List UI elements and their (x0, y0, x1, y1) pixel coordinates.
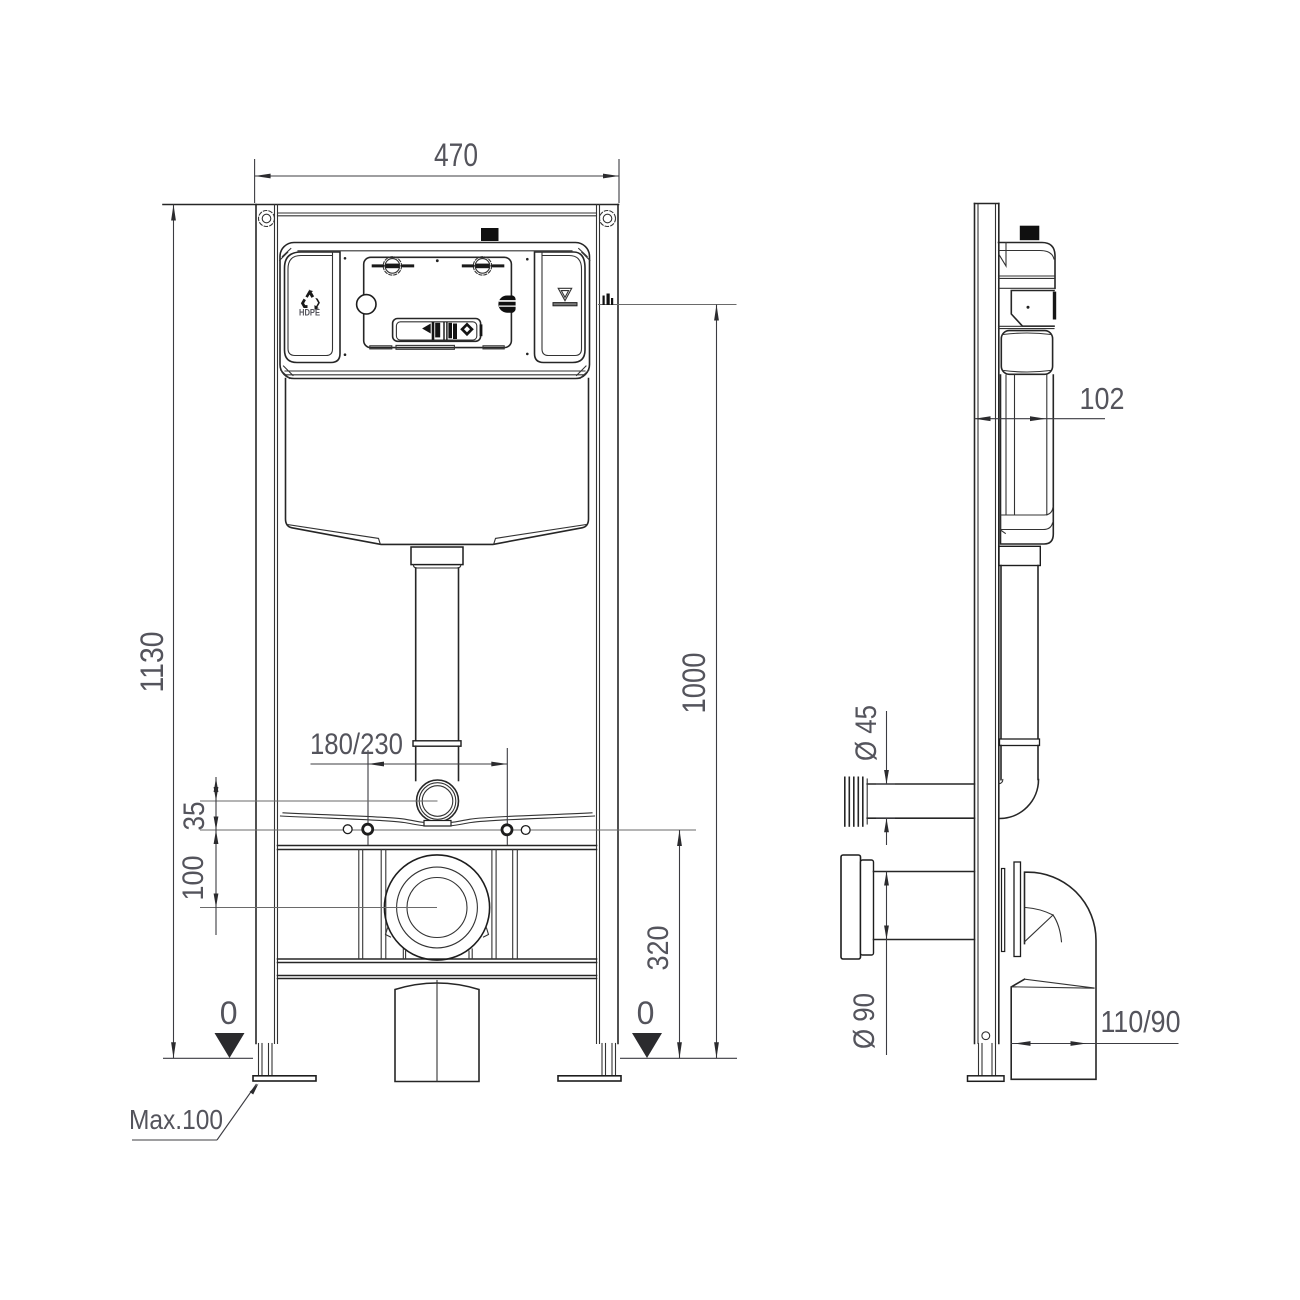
svg-text:0: 0 (220, 995, 238, 1031)
svg-text:HDPE: HDPE (299, 308, 320, 319)
svg-text:110/90: 110/90 (1101, 1004, 1181, 1039)
svg-text:Ø 90: Ø 90 (848, 993, 881, 1049)
svg-text:Ø 45: Ø 45 (850, 705, 883, 761)
svg-text:100: 100 (177, 856, 210, 901)
svg-text:35: 35 (178, 802, 211, 831)
svg-text:102: 102 (1080, 381, 1125, 416)
svg-text:1130: 1130 (134, 632, 170, 693)
svg-text:0: 0 (637, 995, 655, 1031)
svg-text:180/230: 180/230 (310, 728, 403, 761)
svg-text:320: 320 (642, 926, 675, 971)
svg-text:1000: 1000 (676, 653, 712, 714)
svg-text:470: 470 (434, 137, 478, 173)
svg-text:Max.100: Max.100 (129, 1104, 223, 1135)
